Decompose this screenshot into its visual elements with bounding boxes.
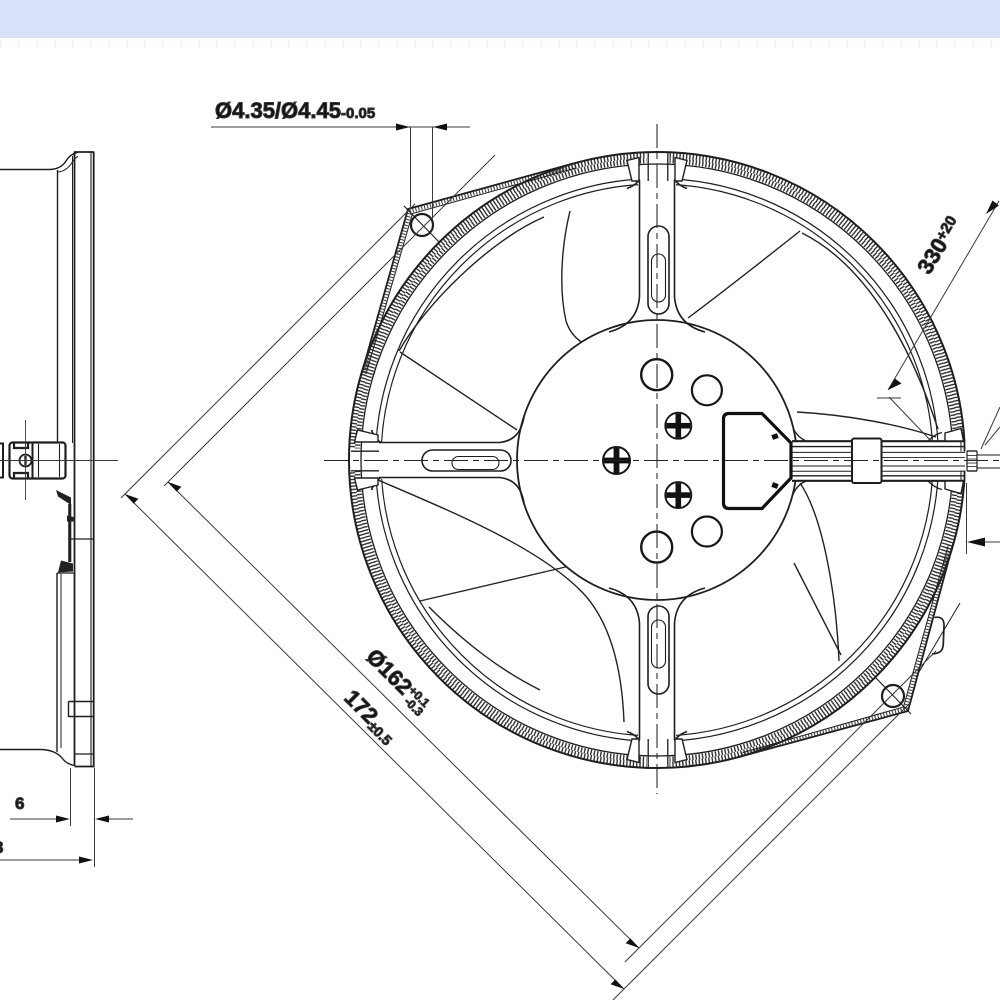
svg-text:Ø4.35/Ø4.45-0.05: Ø4.35/Ø4.45-0.05 <box>215 98 375 123</box>
svg-text:330+20: 330+20 <box>912 212 965 278</box>
svg-text:3: 3 <box>0 838 3 857</box>
svg-text:172±0.5: 172±0.5 <box>339 685 403 749</box>
svg-text:6: 6 <box>15 794 24 813</box>
